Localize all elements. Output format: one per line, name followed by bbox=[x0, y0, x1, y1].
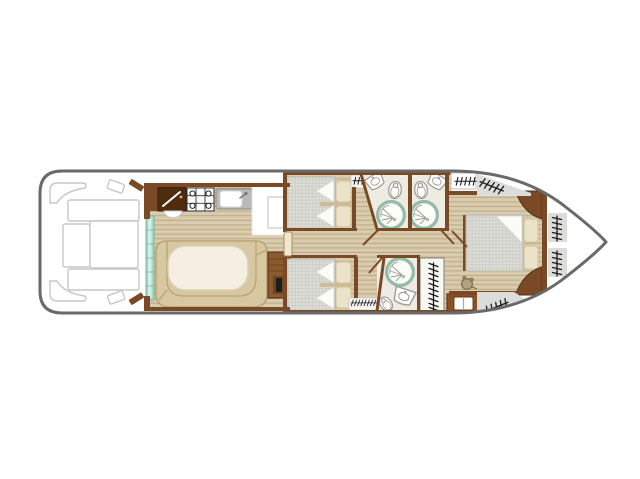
bed-gap bbox=[320, 202, 352, 206]
bathroom-top-right bbox=[409, 171, 447, 229]
pillow bbox=[336, 206, 351, 227]
shower-icon bbox=[376, 200, 405, 229]
sliding-door bbox=[146, 216, 154, 300]
pillow bbox=[336, 262, 351, 283]
deck-bench bbox=[68, 200, 139, 221]
pillow bbox=[524, 246, 538, 269]
deck-locker bbox=[90, 221, 138, 268]
corridor-door bbox=[284, 232, 292, 256]
stove-icon bbox=[187, 188, 214, 211]
shower-icon bbox=[409, 200, 438, 229]
bed-gap bbox=[320, 283, 352, 287]
headboard-wall bbox=[542, 190, 547, 297]
deck-locker bbox=[63, 224, 90, 267]
kitchen-sink-icon bbox=[216, 189, 252, 209]
fridge bbox=[268, 197, 284, 228]
pillow bbox=[524, 219, 538, 242]
shower-icon bbox=[385, 257, 414, 286]
deck-bench bbox=[68, 269, 139, 290]
floor-plan-svg bbox=[0, 0, 640, 479]
dinette-table bbox=[168, 246, 248, 290]
boat-floor-plan bbox=[0, 0, 640, 479]
pillow bbox=[336, 181, 351, 202]
wardrobe bbox=[420, 258, 444, 311]
knob-icon bbox=[180, 196, 183, 199]
